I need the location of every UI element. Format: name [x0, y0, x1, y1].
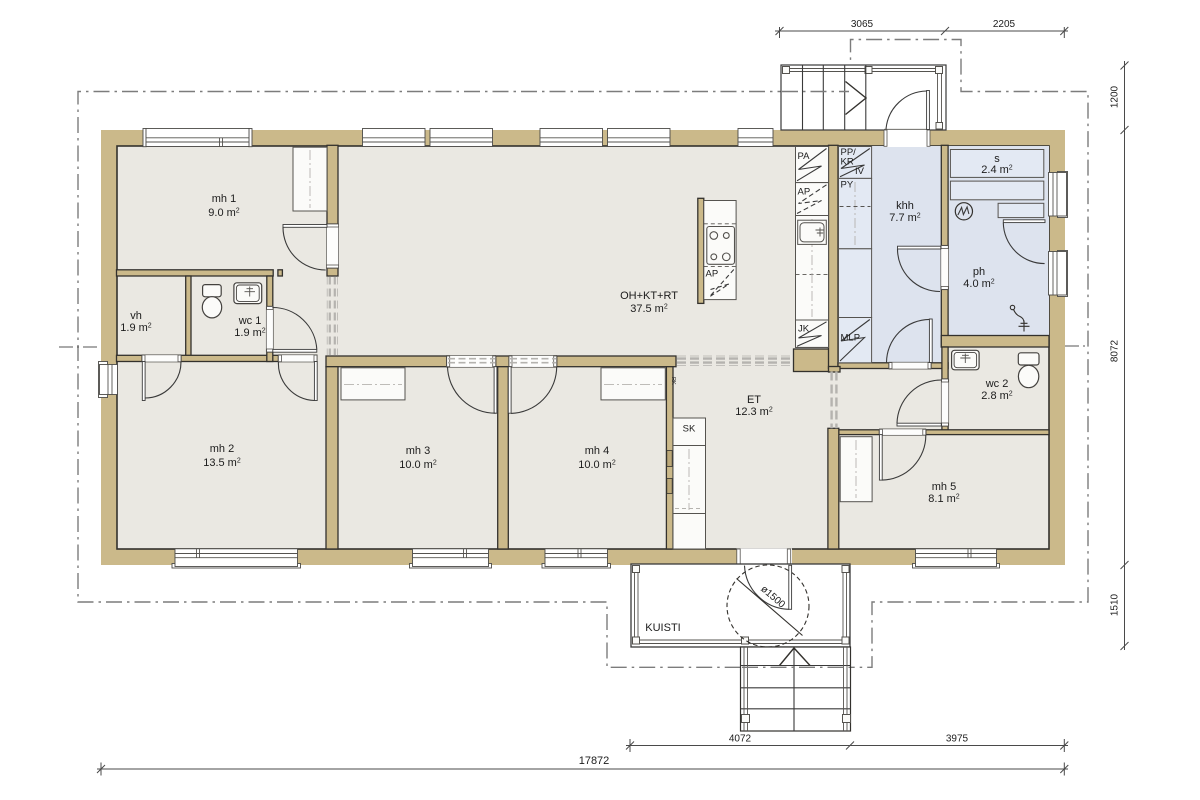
svg-text:17872: 17872	[579, 755, 610, 767]
svg-text:3065: 3065	[851, 19, 874, 30]
svg-text:8.1 m2: 8.1 m2	[928, 493, 960, 505]
svg-text:2.8 m2: 2.8 m2	[981, 390, 1013, 402]
svg-text:wc 2: wc 2	[985, 378, 1009, 390]
svg-text:4.0 m2: 4.0 m2	[963, 278, 995, 290]
svg-text:1.9 m2: 1.9 m2	[234, 327, 266, 339]
svg-text:OH+KT+RT: OH+KT+RT	[620, 290, 678, 302]
svg-text:mh 3: mh 3	[406, 445, 430, 457]
svg-text:SK: SK	[683, 424, 696, 435]
svg-text:KUISTI: KUISTI	[645, 622, 680, 634]
svg-text:wc 1: wc 1	[238, 315, 262, 327]
svg-text:2.4 m2: 2.4 m2	[981, 164, 1013, 176]
svg-text:10.0 m2: 10.0 m2	[399, 459, 437, 471]
svg-text:8072: 8072	[1110, 339, 1121, 362]
svg-text:1510: 1510	[1110, 593, 1121, 616]
svg-text:KR: KR	[841, 157, 854, 168]
svg-text:7.7 m2: 7.7 m2	[889, 212, 921, 224]
svg-text:10.0 m2: 10.0 m2	[578, 459, 616, 471]
svg-text:AP: AP	[706, 269, 719, 280]
svg-text:IV: IV	[855, 166, 865, 177]
svg-text:ph: ph	[973, 266, 985, 278]
svg-text:JK: JK	[798, 324, 810, 335]
svg-text:khh: khh	[896, 200, 914, 212]
svg-text:12.3 m2: 12.3 m2	[735, 406, 773, 418]
svg-text:4072: 4072	[729, 734, 752, 745]
svg-text:ET: ET	[747, 394, 761, 406]
svg-text:MLP: MLP	[841, 333, 861, 344]
svg-text:3975: 3975	[946, 734, 969, 745]
svg-text:mh 1: mh 1	[212, 193, 236, 205]
svg-text:PA: PA	[798, 151, 811, 162]
svg-text:mh 2: mh 2	[210, 443, 234, 455]
svg-text:mh 4: mh 4	[585, 445, 609, 457]
svg-text:2205: 2205	[993, 19, 1016, 30]
svg-text:mh 5: mh 5	[932, 481, 956, 493]
svg-text:AP: AP	[798, 187, 811, 198]
svg-text:vh: vh	[130, 310, 142, 322]
svg-text:9.0 m2: 9.0 m2	[208, 207, 240, 219]
svg-text:1200: 1200	[1110, 85, 1121, 108]
svg-text:13.5 m2: 13.5 m2	[203, 457, 241, 469]
svg-text:1.9 m2: 1.9 m2	[120, 322, 152, 334]
svg-text:RK: RK	[670, 377, 676, 385]
svg-text:37.5 m2: 37.5 m2	[630, 303, 668, 315]
svg-text:PY: PY	[841, 180, 854, 191]
